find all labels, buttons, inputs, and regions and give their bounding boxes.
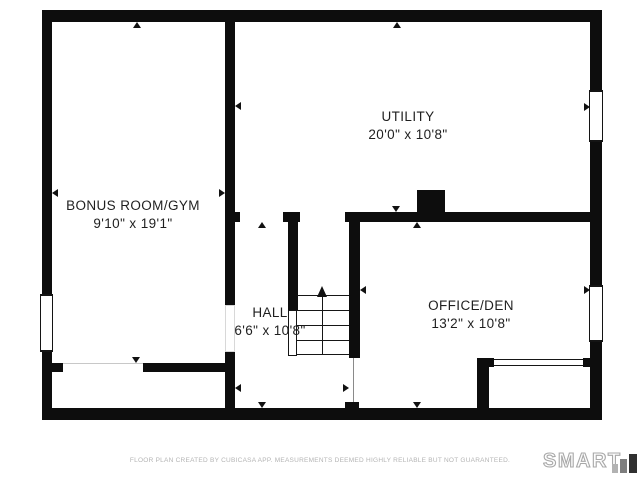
dimension-arrow bbox=[235, 102, 241, 110]
wall-segment bbox=[225, 22, 235, 305]
window bbox=[589, 285, 603, 342]
dimension-arrow bbox=[584, 103, 590, 111]
plan-line bbox=[322, 296, 323, 354]
wall-segment bbox=[417, 190, 445, 216]
wall-segment bbox=[590, 10, 602, 90]
dimension-arrow bbox=[258, 402, 266, 408]
plan-line bbox=[63, 363, 143, 364]
plan-line bbox=[297, 340, 349, 341]
room-name: HALL bbox=[234, 304, 305, 322]
room-label: OFFICE/DEN13'2" x 10'8" bbox=[428, 297, 514, 333]
logo-bar bbox=[629, 454, 637, 473]
dimension-arrow bbox=[258, 222, 266, 228]
wall-segment bbox=[345, 402, 359, 410]
window bbox=[40, 294, 53, 352]
room-dimensions: 20'0" x 10'8" bbox=[368, 126, 447, 144]
stairs-up-arrow bbox=[317, 286, 327, 297]
logo-bar bbox=[620, 459, 627, 473]
plan-line bbox=[297, 354, 349, 355]
dimension-arrow bbox=[392, 206, 400, 212]
window bbox=[589, 90, 603, 142]
dimension-arrow bbox=[413, 222, 421, 228]
room-name: BONUS ROOM/GYM bbox=[66, 197, 200, 215]
wall-segment bbox=[349, 222, 360, 358]
dimension-arrow bbox=[52, 189, 58, 197]
wall-segment bbox=[583, 358, 590, 367]
wall-segment bbox=[345, 212, 590, 222]
wall-segment bbox=[143, 363, 225, 372]
wall-segment bbox=[42, 408, 602, 420]
dimension-arrow bbox=[219, 189, 225, 197]
plan-line bbox=[494, 365, 583, 366]
room-label: HALL6'6" x 10'8" bbox=[234, 304, 305, 340]
dimension-arrow bbox=[343, 384, 349, 392]
dimension-arrow bbox=[584, 286, 590, 294]
wall-segment bbox=[42, 10, 602, 22]
room-name: OFFICE/DEN bbox=[428, 297, 514, 315]
wall-segment bbox=[42, 10, 52, 294]
wall-segment bbox=[477, 358, 494, 367]
wall-segment bbox=[52, 363, 63, 372]
wall-segment bbox=[283, 212, 300, 222]
dimension-arrow bbox=[235, 384, 241, 392]
room-name: UTILITY bbox=[368, 108, 447, 126]
dimension-arrow bbox=[393, 22, 401, 28]
room-label: UTILITY20'0" x 10'8" bbox=[368, 108, 447, 144]
plan-line bbox=[353, 358, 354, 402]
floor-plan: BONUS ROOM/GYM9'10" x 19'1"UTILITY20'0" … bbox=[0, 0, 640, 480]
dimension-arrow bbox=[133, 22, 141, 28]
dimension-arrow bbox=[132, 357, 140, 363]
wall-segment bbox=[590, 142, 602, 285]
room-label: BONUS ROOM/GYM9'10" x 19'1" bbox=[66, 197, 200, 233]
dimension-arrow bbox=[360, 286, 366, 294]
smartmls-logo: SMART bbox=[543, 450, 622, 473]
wall-segment bbox=[225, 352, 235, 408]
room-dimensions: 9'10" x 19'1" bbox=[66, 215, 200, 233]
wall-segment bbox=[590, 342, 602, 420]
dimension-arrow bbox=[413, 402, 421, 408]
logo-bar bbox=[612, 464, 618, 473]
room-dimensions: 6'6" x 10'8" bbox=[234, 322, 305, 340]
wall-segment bbox=[42, 352, 52, 420]
room-dimensions: 13'2" x 10'8" bbox=[428, 315, 514, 333]
plan-line bbox=[494, 359, 583, 360]
wall-segment bbox=[225, 212, 240, 222]
wall-segment bbox=[288, 222, 298, 310]
